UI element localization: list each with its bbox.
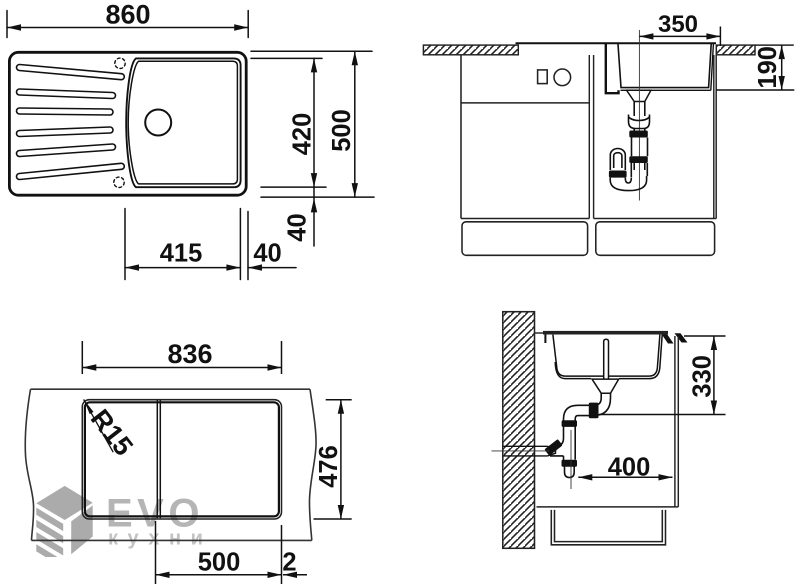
svg-text:420: 420 xyxy=(289,113,317,156)
svg-text:350: 350 xyxy=(658,11,698,38)
svg-text:415: 415 xyxy=(160,240,203,268)
svg-text:400: 400 xyxy=(608,454,651,482)
svg-text:2: 2 xyxy=(282,549,296,577)
svg-text:40: 40 xyxy=(253,240,281,268)
svg-text:476: 476 xyxy=(315,445,343,488)
svg-text:кухни: кухни xyxy=(108,528,212,550)
svg-text:500: 500 xyxy=(328,109,356,152)
svg-text:860: 860 xyxy=(105,0,150,30)
svg-text:190: 190 xyxy=(754,46,782,89)
svg-text:836: 836 xyxy=(167,339,212,369)
svg-text:500: 500 xyxy=(198,549,241,577)
svg-text:40: 40 xyxy=(284,213,312,241)
svg-text:330: 330 xyxy=(689,355,717,398)
